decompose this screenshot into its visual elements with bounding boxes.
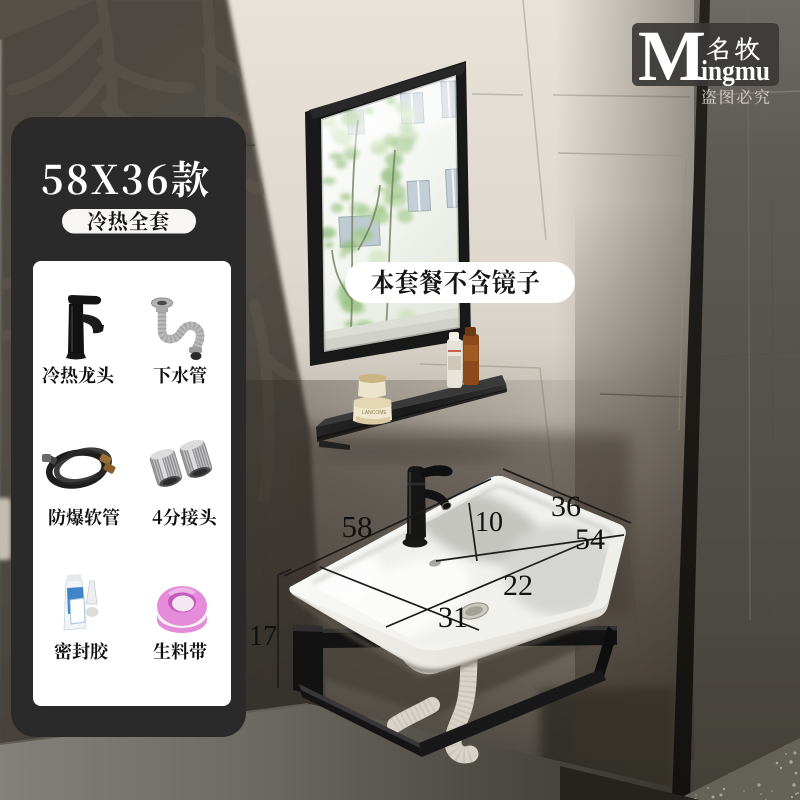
svg-text:36: 36 [551, 490, 581, 523]
svg-text:22: 22 [503, 569, 533, 602]
svg-text:31: 31 [438, 601, 468, 634]
svg-text:LANCOME: LANCOME [362, 410, 387, 416]
svg-text:ingmu: ingmu [701, 56, 770, 87]
svg-text:54: 54 [575, 523, 605, 556]
svg-text:10: 10 [475, 507, 503, 538]
svg-text:17: 17 [249, 621, 277, 652]
svg-text:58: 58 [342, 509, 373, 544]
svg-text:M: M [638, 16, 706, 96]
